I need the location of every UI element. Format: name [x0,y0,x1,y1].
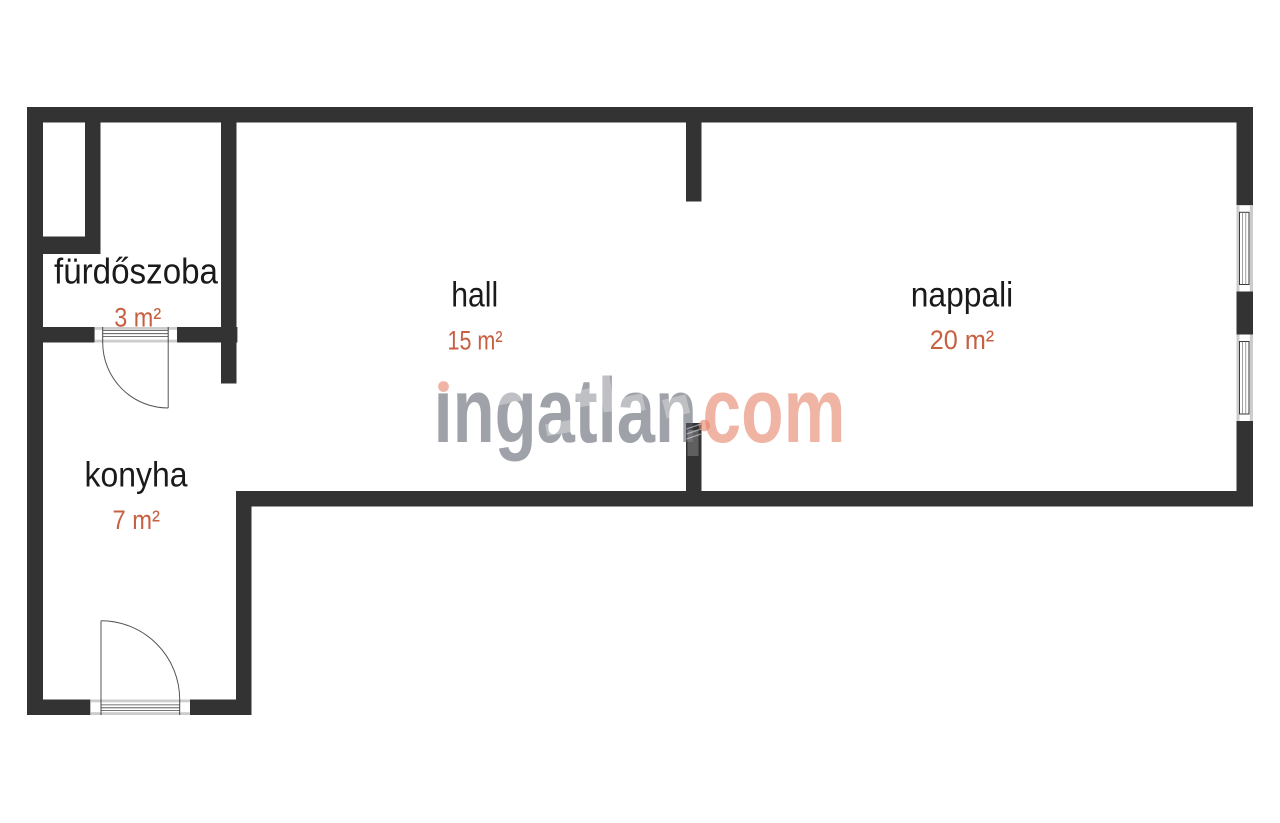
svg-text:com: com [703,360,846,462]
svg-text:fürdőszoba: fürdőszoba [54,251,219,292]
svg-text:hall: hall [451,275,498,314]
svg-text:konyha: konyha [85,455,188,494]
svg-text:ıngatlan: ıngatlan [434,360,698,462]
svg-text:3 m²: 3 m² [114,303,161,333]
svg-text:15 m²: 15 m² [448,325,503,355]
svg-text:7 m²: 7 m² [112,505,160,535]
svg-text:nappali: nappali [911,275,1014,314]
svg-text:20 m²: 20 m² [930,325,995,355]
